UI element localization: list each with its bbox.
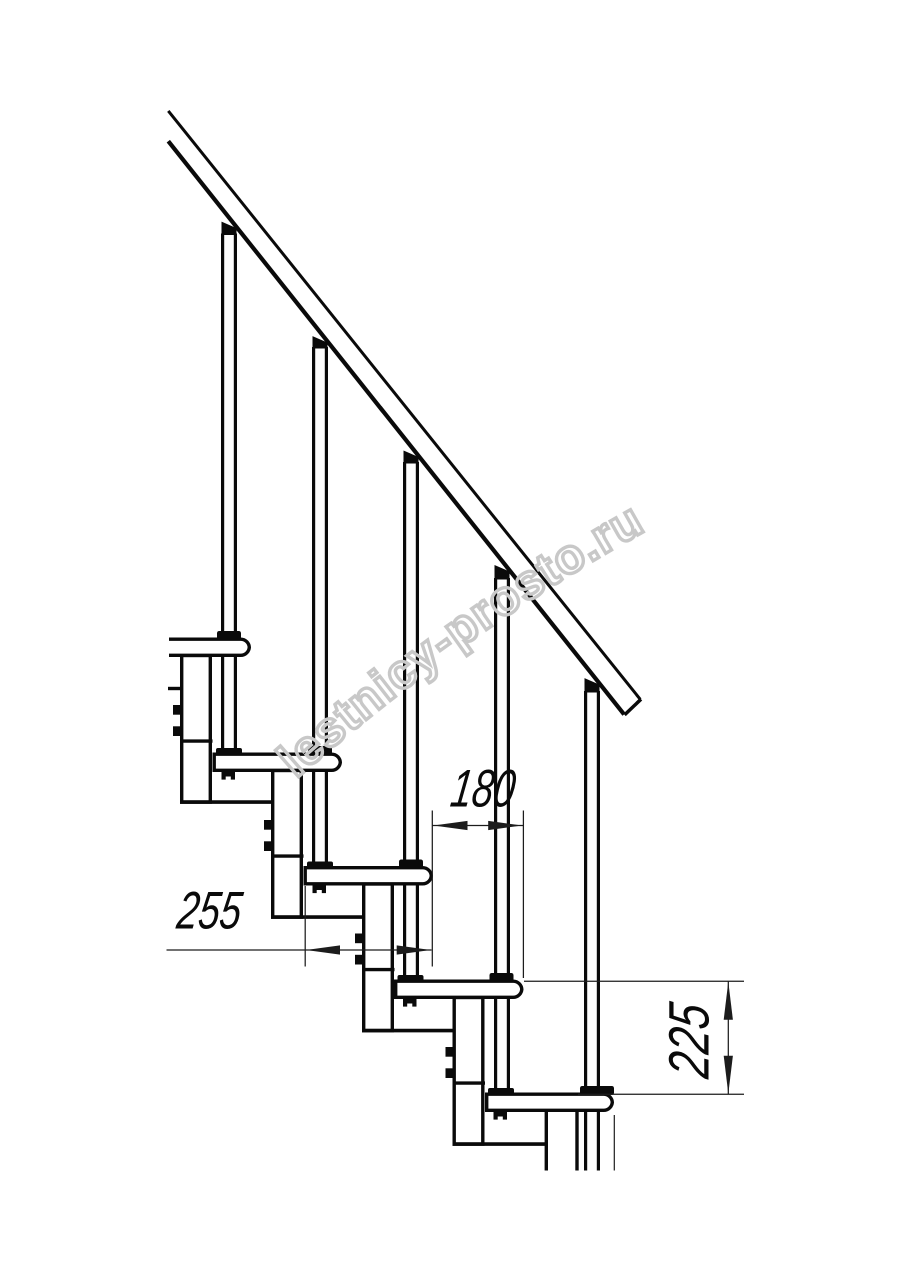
- svg-text:225: 225: [657, 999, 720, 1082]
- svg-text:255: 255: [173, 881, 246, 940]
- svg-text:180: 180: [447, 759, 519, 818]
